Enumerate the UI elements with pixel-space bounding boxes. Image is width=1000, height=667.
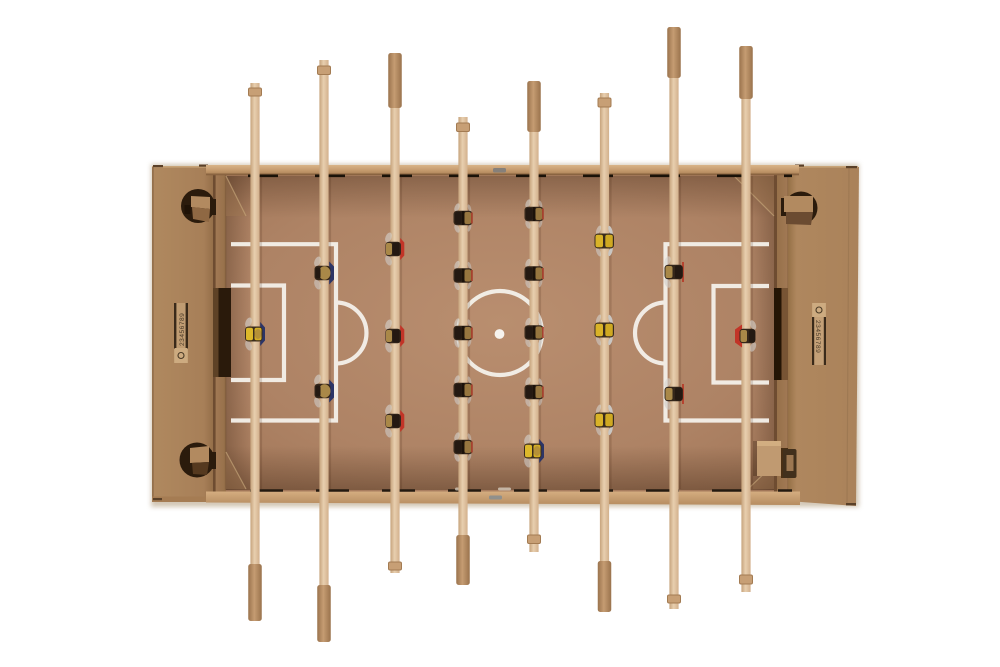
svg-text:23456789: 23456789	[814, 320, 821, 353]
svg-text:23456789: 23456789	[179, 313, 186, 346]
